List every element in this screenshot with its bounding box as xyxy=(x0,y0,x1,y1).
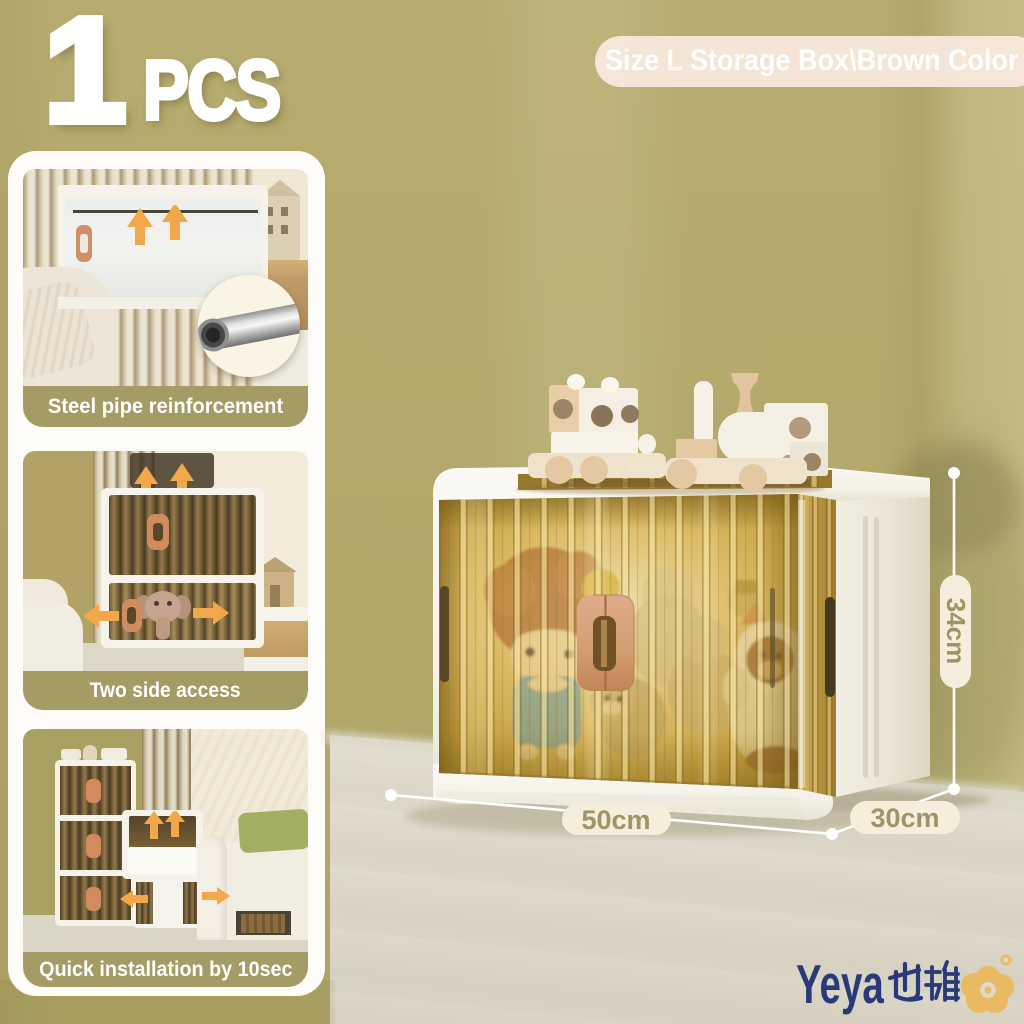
svg-text:50cm: 50cm xyxy=(581,805,650,835)
svg-text:Yeya: Yeya xyxy=(796,954,884,1015)
svg-text:34cm: 34cm xyxy=(941,598,971,665)
svg-text:30cm: 30cm xyxy=(870,803,939,833)
